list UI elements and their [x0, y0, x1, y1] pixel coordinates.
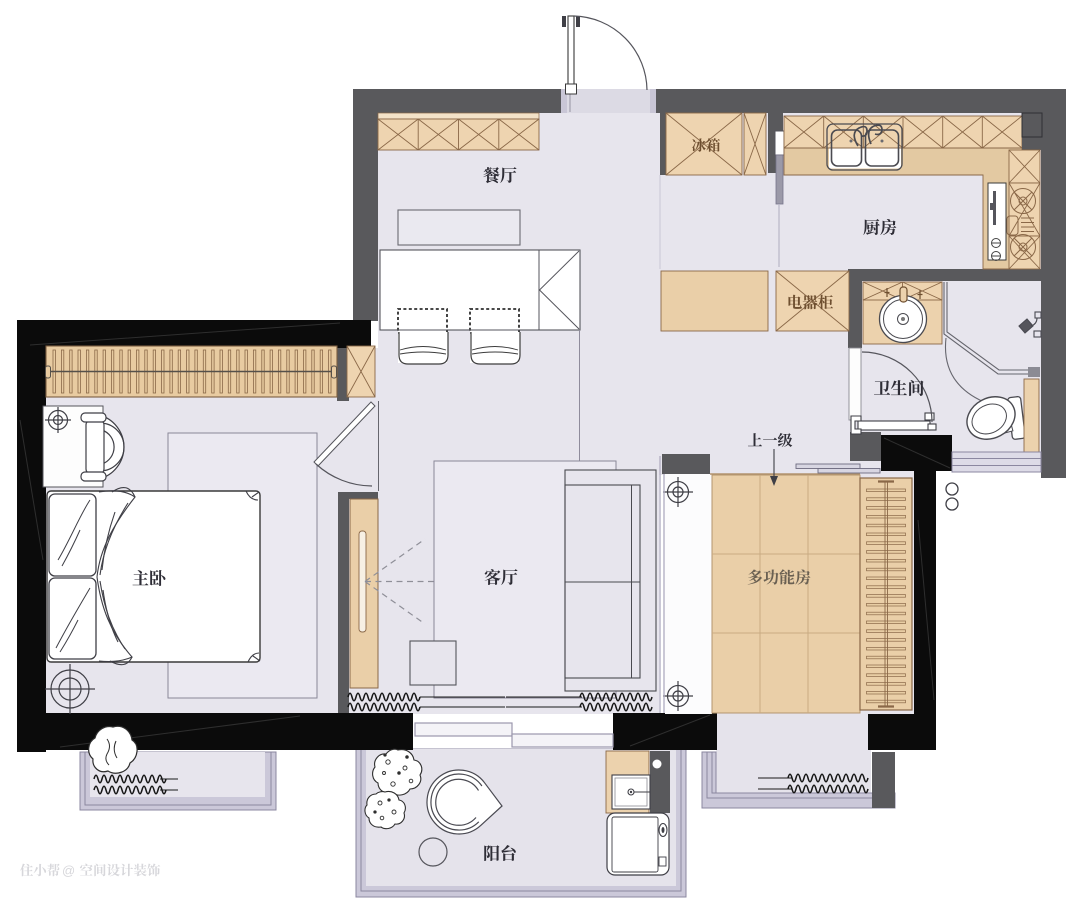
svg-text:@: @	[62, 863, 75, 878]
